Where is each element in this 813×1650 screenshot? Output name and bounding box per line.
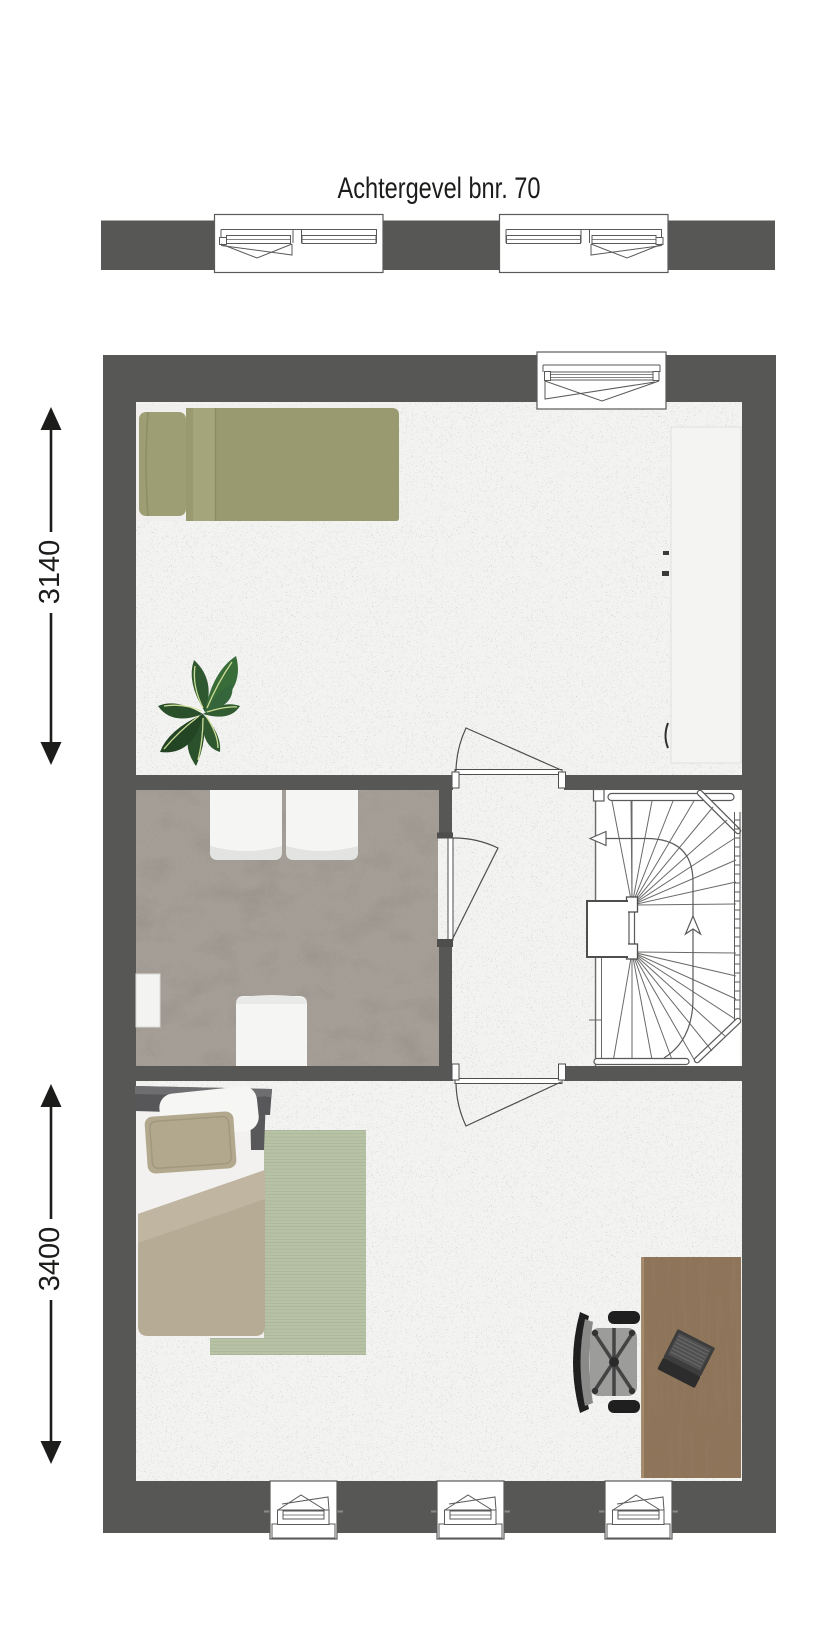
svg-text:3400: 3400 bbox=[34, 1227, 66, 1292]
svg-text:Achtergevel bnr. 70: Achtergevel bnr. 70 bbox=[338, 172, 541, 205]
svg-text:3140: 3140 bbox=[34, 540, 66, 605]
